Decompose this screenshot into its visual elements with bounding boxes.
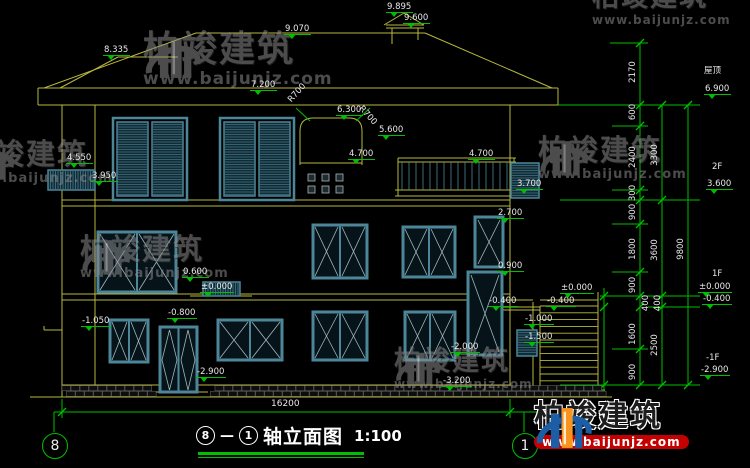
title-underline	[198, 452, 364, 455]
elevation-marker: 3.700	[516, 179, 543, 190]
level-name: -1F	[706, 353, 719, 363]
title-axis-end: 1	[239, 426, 258, 445]
level-name: 1F	[712, 269, 722, 279]
axis-bubble-1: 1	[512, 433, 538, 459]
dimension-label: 3600	[650, 236, 660, 264]
dimension-label: 2170	[628, 58, 638, 86]
elevation-marker: -3.200	[442, 376, 472, 387]
elevation-marker: 3.950	[91, 171, 118, 182]
cad-elevation-drawing: 9.8959.6009.0708.3357.2006.3005.6004.700…	[0, 0, 750, 468]
elevation-marker: -0.400	[488, 296, 518, 307]
elevation-marker: 4.700	[348, 149, 375, 160]
elevation-marker: 6.900	[704, 84, 731, 95]
dimension-label: 600	[628, 98, 638, 126]
title-axis-start: 8	[196, 426, 215, 445]
elevation-marker: -1.000	[524, 314, 554, 325]
elevation-marker: 4.700	[468, 149, 495, 160]
dimension-label: 9800	[676, 235, 686, 263]
total-width-dim: 16200	[271, 399, 300, 409]
level-name: 屋顶	[704, 66, 721, 76]
elevation-marker: 9.070	[284, 24, 311, 35]
dimension-label: 1600	[628, 320, 638, 348]
elevation-marker: -2.900	[700, 365, 730, 376]
elevation-marker: -2.000	[450, 342, 480, 353]
elevation-marker: 0.900	[497, 261, 524, 272]
elevation-marker: 8.335	[103, 45, 130, 56]
title-scale: 1:100	[354, 427, 402, 445]
dimension-label: 2500	[650, 331, 660, 359]
dimension-label: 2400	[628, 143, 638, 171]
dimension-label: 900	[628, 358, 638, 386]
level-name: 2F	[712, 162, 722, 172]
drawing-title: 8 — 1 轴立面图 1:100	[196, 422, 402, 449]
title-name: 轴立面图	[263, 422, 343, 449]
title-dash: —	[220, 428, 234, 444]
elevation-marker: 9.895	[386, 2, 413, 13]
elevation-marker: 4.550	[66, 153, 93, 164]
decorative-vents	[308, 174, 343, 193]
elevation-marker: -1.500	[524, 332, 554, 343]
elevation-marker: -0.400	[702, 294, 732, 305]
axis-bubble-8: 8	[42, 433, 68, 459]
dimension-label: 1800	[628, 235, 638, 263]
elevation-marker: 2.700	[497, 208, 524, 219]
dimension-label: 3300	[650, 141, 660, 169]
elevation-marker: 0.600	[182, 267, 209, 278]
brick-base	[62, 386, 606, 397]
elevation-marker: -0.800	[167, 308, 197, 319]
elevation-marker: -1.050	[81, 316, 111, 327]
elevation-marker: 9.600	[403, 13, 430, 24]
elevation-marker: -2.900	[196, 367, 226, 378]
elevation-marker: 3.600	[706, 179, 733, 190]
dimension-label: 900	[628, 271, 638, 299]
elevation-marker: 5.600	[378, 125, 405, 136]
elevation-marker: ±0.000	[560, 283, 594, 294]
title-underline-thin	[198, 457, 364, 458]
elevation-marker: ±0.000	[698, 282, 732, 293]
dimension-label: 900	[628, 198, 638, 226]
elevation-marker: ±0.000	[200, 282, 234, 293]
dimension-label: 400	[641, 289, 651, 317]
dimension-label: 400	[653, 289, 663, 317]
elevation-marker: 7.200	[250, 80, 277, 91]
